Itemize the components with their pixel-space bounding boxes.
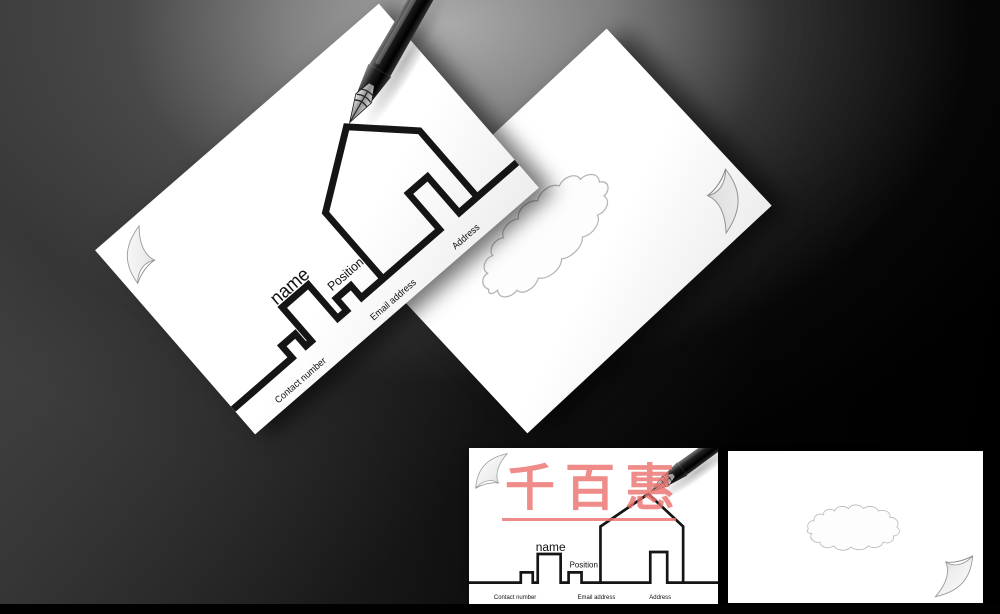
thumbnail-back [728, 451, 983, 603]
address-label: Address [649, 595, 671, 601]
contact-number-label: Contact number [494, 595, 536, 601]
bottom-black-bar [0, 604, 1000, 614]
watermark-text: 千百惠 [505, 460, 685, 515]
page-curl-icon [925, 549, 977, 601]
scene: name Position Contact number Email addre… [0, 0, 1000, 614]
name-label: name [536, 540, 566, 554]
email-address-label: Email address [578, 595, 616, 601]
thumbnail-front: name Position Contact number Email addre… [469, 448, 718, 604]
watermark-underline [502, 518, 676, 521]
ink-blot-outline [798, 495, 913, 557]
position-label: Position [570, 560, 598, 569]
